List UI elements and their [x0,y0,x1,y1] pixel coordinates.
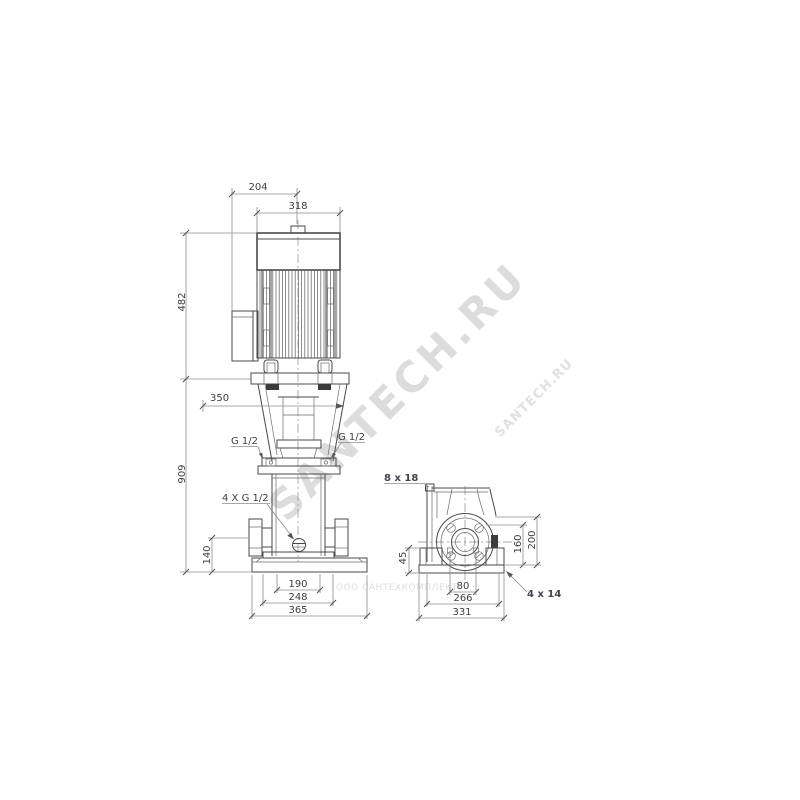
side-stool-leg [426,484,435,562]
watermark-company: ООО САНТЕХКОМПЛЕКТ [336,583,458,593]
dim-160-label: 160 [513,534,524,553]
slot-label: 8 x 18 [384,473,418,484]
dim-482-label: 482 [177,292,188,311]
drawing-canvas: SANTECH.RU SANTECH.RU ООО САНТЕХКОМПЛЕКТ [0,0,800,800]
front-dimensions: 204 318 482 909 350 G 1/2 [177,182,370,619]
clamp-bolt-left [266,384,279,390]
flange-right [335,519,348,556]
drain-plug [293,539,306,552]
side-feet [420,548,504,565]
dim-200-label: 200 [527,530,538,549]
clamp-bolt-right [318,384,331,390]
dim-331-label: 331 [452,607,471,618]
terminal-box [232,311,258,361]
motor-fins [260,270,337,358]
port-left-label: G 1/2 [231,436,258,447]
dim-350-label: 350 [210,393,229,404]
dim-909-label: 909 [177,464,188,483]
flange-left [249,519,262,556]
dim-45-label: 45 [398,552,409,565]
side-flange [437,514,499,571]
dim-204-label: 204 [248,182,267,193]
dim-365-label: 365 [288,605,307,616]
watermark-small-diagonal: SANTECH.RU [492,356,576,440]
base-plate-side [419,565,504,573]
side-discharge-edge [491,535,498,548]
motor [232,226,349,390]
base-plate-front [252,552,367,572]
front-view: 204 318 482 909 350 G 1/2 [177,182,370,619]
port-right-label: G 1/2 [338,432,365,443]
dim-266-label: 266 [453,593,472,604]
dim-80-label: 80 [457,581,470,592]
dim-140-label: 140 [202,545,213,564]
hole-label: 4 x 14 [527,589,561,600]
side-view: 8 x 18 45 80 266 [384,473,561,621]
dim-248-label: 248 [288,592,307,603]
watermark-large: SANTECH.RU [259,253,537,531]
dim-318-label: 318 [288,201,307,212]
pump-dimensional-drawing: SANTECH.RU SANTECH.RU ООО САНТЕХКОМПЛЕКТ [0,0,800,800]
dim-190-label: 190 [288,579,307,590]
drain-label: 4 X G 1/2 [222,493,269,504]
